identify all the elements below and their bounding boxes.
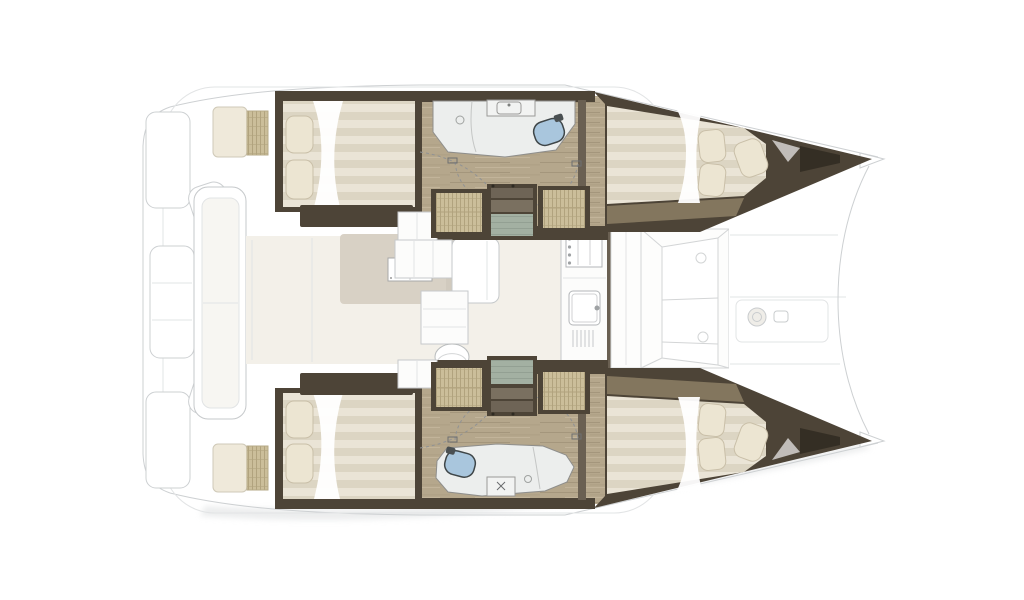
stbd-companionway-stairs (487, 356, 537, 416)
stern-platform (150, 246, 194, 358)
helm-seat-bottom (213, 444, 268, 492)
transom-step-top (146, 112, 190, 208)
port-bathroom-wall (578, 100, 586, 188)
cockpit-bench (194, 187, 246, 419)
port-companionway-stairs (487, 184, 537, 240)
forward-seating (641, 229, 729, 368)
port-wicker-cabinet-left (431, 189, 487, 238)
bathroom-sink-icon (487, 477, 515, 496)
transom-step-bottom (146, 392, 190, 488)
helm-seat-top (213, 107, 268, 157)
galley-sink (569, 291, 600, 325)
port-wicker-cabinet-right (538, 186, 590, 233)
stair-tread-teal (491, 360, 533, 384)
stair-tread-teal (491, 214, 533, 236)
stbd-aft-cabin (275, 360, 437, 509)
catamaran-floorplan (0, 0, 1024, 600)
stbd-bathroom-wall (578, 412, 586, 500)
port-bathroom (433, 100, 575, 157)
galley (561, 228, 608, 368)
bathroom-sink-icon (487, 100, 535, 116)
footboard (300, 373, 413, 395)
nav-cabinet (421, 291, 468, 344)
stbd-wicker-cabinet-right (538, 367, 590, 414)
salon (246, 228, 729, 370)
footboard (300, 205, 413, 227)
stbd-wicker-cabinet-left (431, 362, 487, 411)
forward-passage (611, 229, 641, 368)
galley-partition-wall (607, 229, 611, 368)
starboard-hull (275, 356, 872, 509)
